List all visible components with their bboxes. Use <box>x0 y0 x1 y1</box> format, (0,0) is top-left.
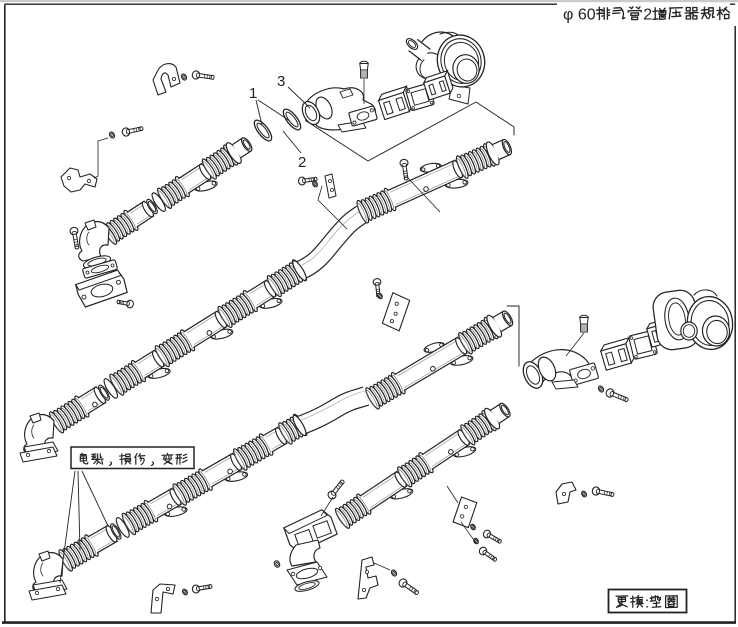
svg-text::: : <box>645 595 649 612</box>
svg-text:1: 1 <box>249 85 257 102</box>
svg-text:2: 2 <box>298 154 306 171</box>
svg-text:φ 60: φ 60 <box>563 7 596 24</box>
svg-text:3: 3 <box>277 73 285 90</box>
svg-text:2: 2 <box>643 7 652 24</box>
